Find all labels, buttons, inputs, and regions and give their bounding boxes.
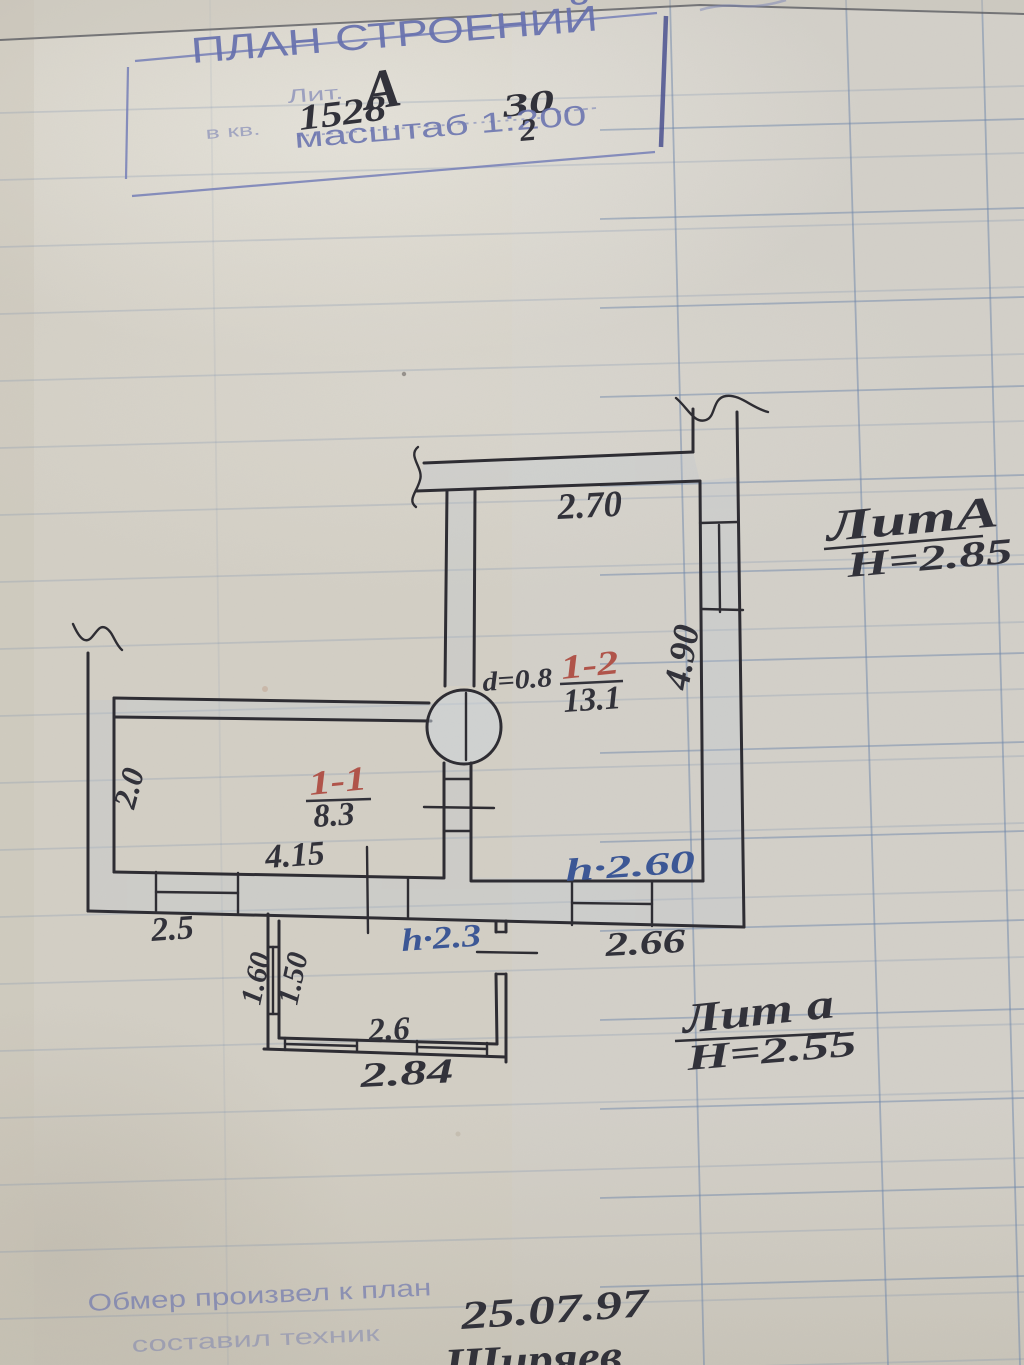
svg-text:h·2.3: h·2.3	[400, 916, 482, 957]
svg-text:13.1: 13.1	[562, 680, 622, 720]
svg-text:2.84: 2.84	[358, 1051, 454, 1095]
svg-text:2.5: 2.5	[149, 909, 195, 949]
svg-text:8.3: 8.3	[312, 796, 356, 835]
svg-text:2.66: 2.66	[603, 923, 686, 964]
svg-text:2.6: 2.6	[367, 1011, 412, 1049]
svg-text:2.70: 2.70	[555, 484, 623, 528]
svg-text:4.15: 4.15	[263, 835, 326, 876]
svg-text:d=0.8: d=0.8	[481, 662, 553, 697]
svg-text:2: 2	[517, 111, 537, 148]
